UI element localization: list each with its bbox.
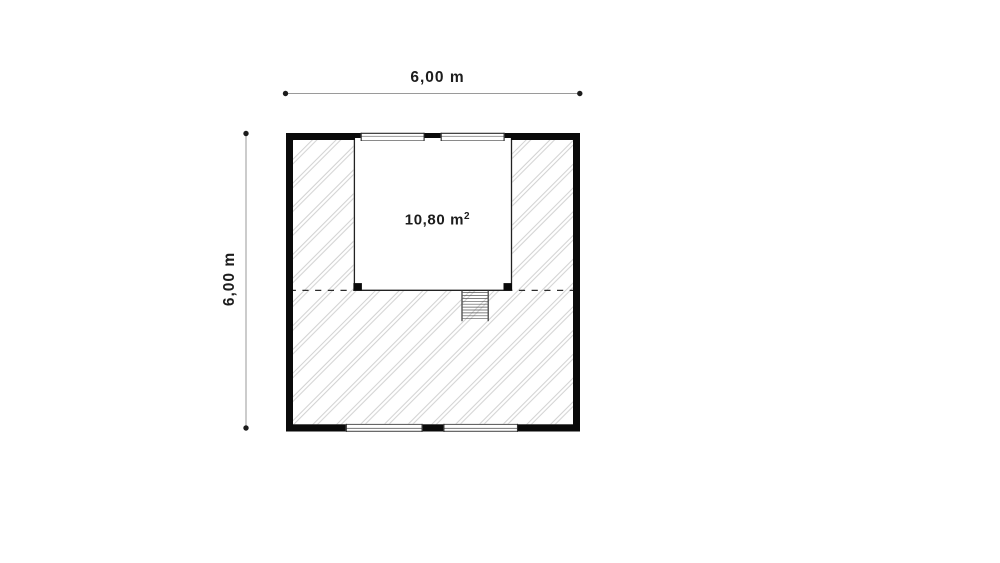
svg-text:6,00 m: 6,00 m — [221, 252, 238, 306]
svg-text:6,00 m: 6,00 m — [410, 69, 464, 86]
svg-text:10,80 m2: 10,80 m2 — [405, 211, 470, 229]
